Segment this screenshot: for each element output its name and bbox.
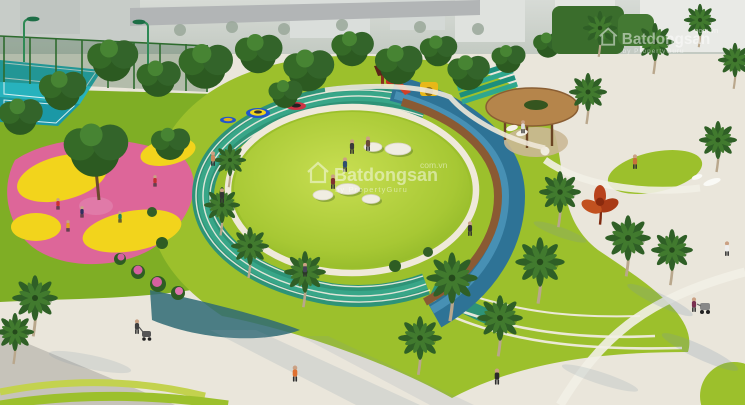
trampoline	[220, 117, 236, 123]
pavilion-deck	[504, 127, 568, 157]
brand-tagline: by PropertyGuru	[623, 48, 685, 55]
trampoline	[246, 108, 270, 118]
brand-suffix: com.vn	[420, 160, 448, 170]
roof-opening	[524, 100, 548, 110]
brand-suffix: com.vn	[695, 26, 718, 35]
scene: Batdongsan com.vn by PropertyGuru Batdon…	[0, 0, 745, 405]
brand-tagline: by PropertyGuru	[335, 185, 408, 194]
park-aerial-rendering: Batdongsan com.vn by PropertyGuru Batdon…	[0, 0, 745, 405]
